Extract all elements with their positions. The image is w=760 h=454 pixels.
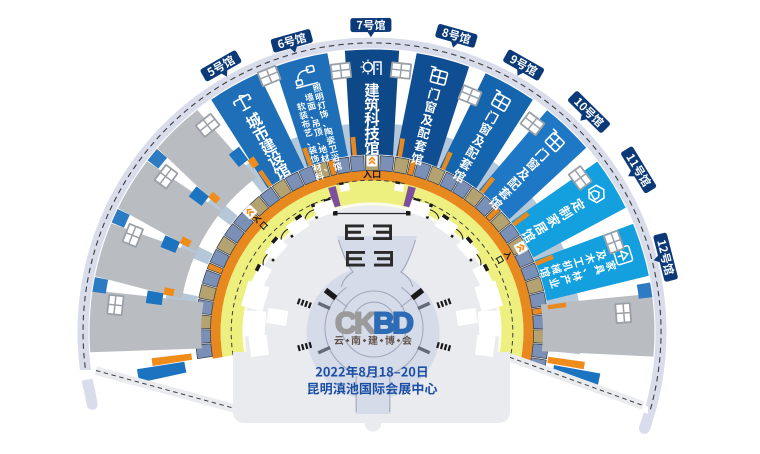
svg-text:CKBD: CKBD [335, 307, 413, 340]
